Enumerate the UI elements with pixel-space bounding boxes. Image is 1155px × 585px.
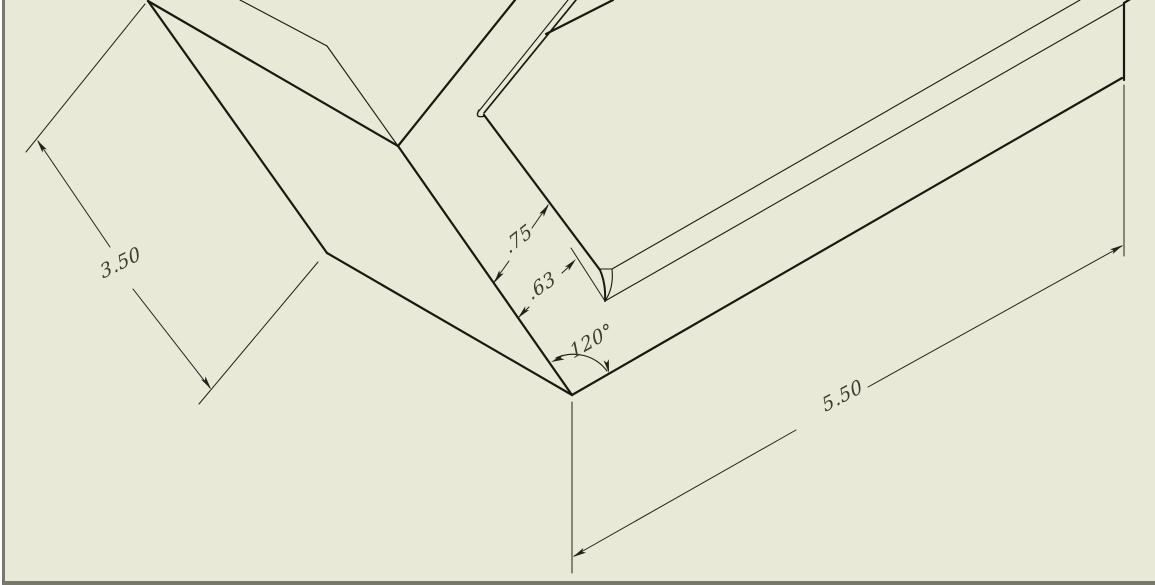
extension-line	[199, 262, 318, 404]
part-edge	[148, 1, 327, 253]
part-edge	[546, 0, 613, 34]
dimension-arrowhead	[1110, 243, 1124, 254]
extension-line	[571, 248, 605, 301]
part-edge	[398, 0, 515, 146]
tangent-edge	[605, 4, 1124, 301]
part-edges-group	[148, 0, 1132, 395]
tangent-edge	[479, 0, 568, 111]
dimension-arrowhead	[604, 359, 612, 373]
dimension-arrowhead	[572, 548, 586, 559]
dimension-line	[133, 289, 210, 388]
dimension-line	[574, 430, 796, 556]
part-edge	[484, 115, 600, 270]
extension-line	[26, 4, 145, 152]
dimension-label-part-length[interactable]: 5.50	[819, 374, 866, 417]
tangent-edge	[327, 46, 398, 146]
dimension-label-bend-angle[interactable]: 120°	[566, 318, 616, 363]
tangent-edges-group	[240, 0, 1124, 301]
dimension-label-lip-height[interactable]: .63	[523, 266, 559, 305]
part-edge	[148, 1, 398, 146]
tangent-edge	[612, 0, 1080, 269]
dimension-labels-group: 3.50.75.63120°5.50	[97, 219, 866, 417]
dimension-label-plate-width[interactable]: 3.50	[97, 242, 144, 284]
extension-lines-group	[26, 4, 1124, 573]
dimension-line	[38, 141, 110, 247]
part-edge	[484, 0, 576, 113]
viewport-left-border	[2, 0, 5, 585]
dimension-line	[868, 246, 1122, 387]
tangent-edge	[240, 0, 327, 46]
dimension-arrowhead	[35, 138, 47, 152]
part-edge	[327, 253, 572, 395]
isometric-drawing: 3.50.75.63120°5.50	[0, 0, 1155, 585]
cad-viewport[interactable]: 3.50.75.63120°5.50	[0, 0, 1155, 585]
dimension-label-flange-width[interactable]: .75	[500, 219, 537, 259]
part-edge	[1124, 0, 1132, 3]
viewport-bottom-border	[2, 581, 1155, 585]
part-edge	[572, 78, 1122, 395]
